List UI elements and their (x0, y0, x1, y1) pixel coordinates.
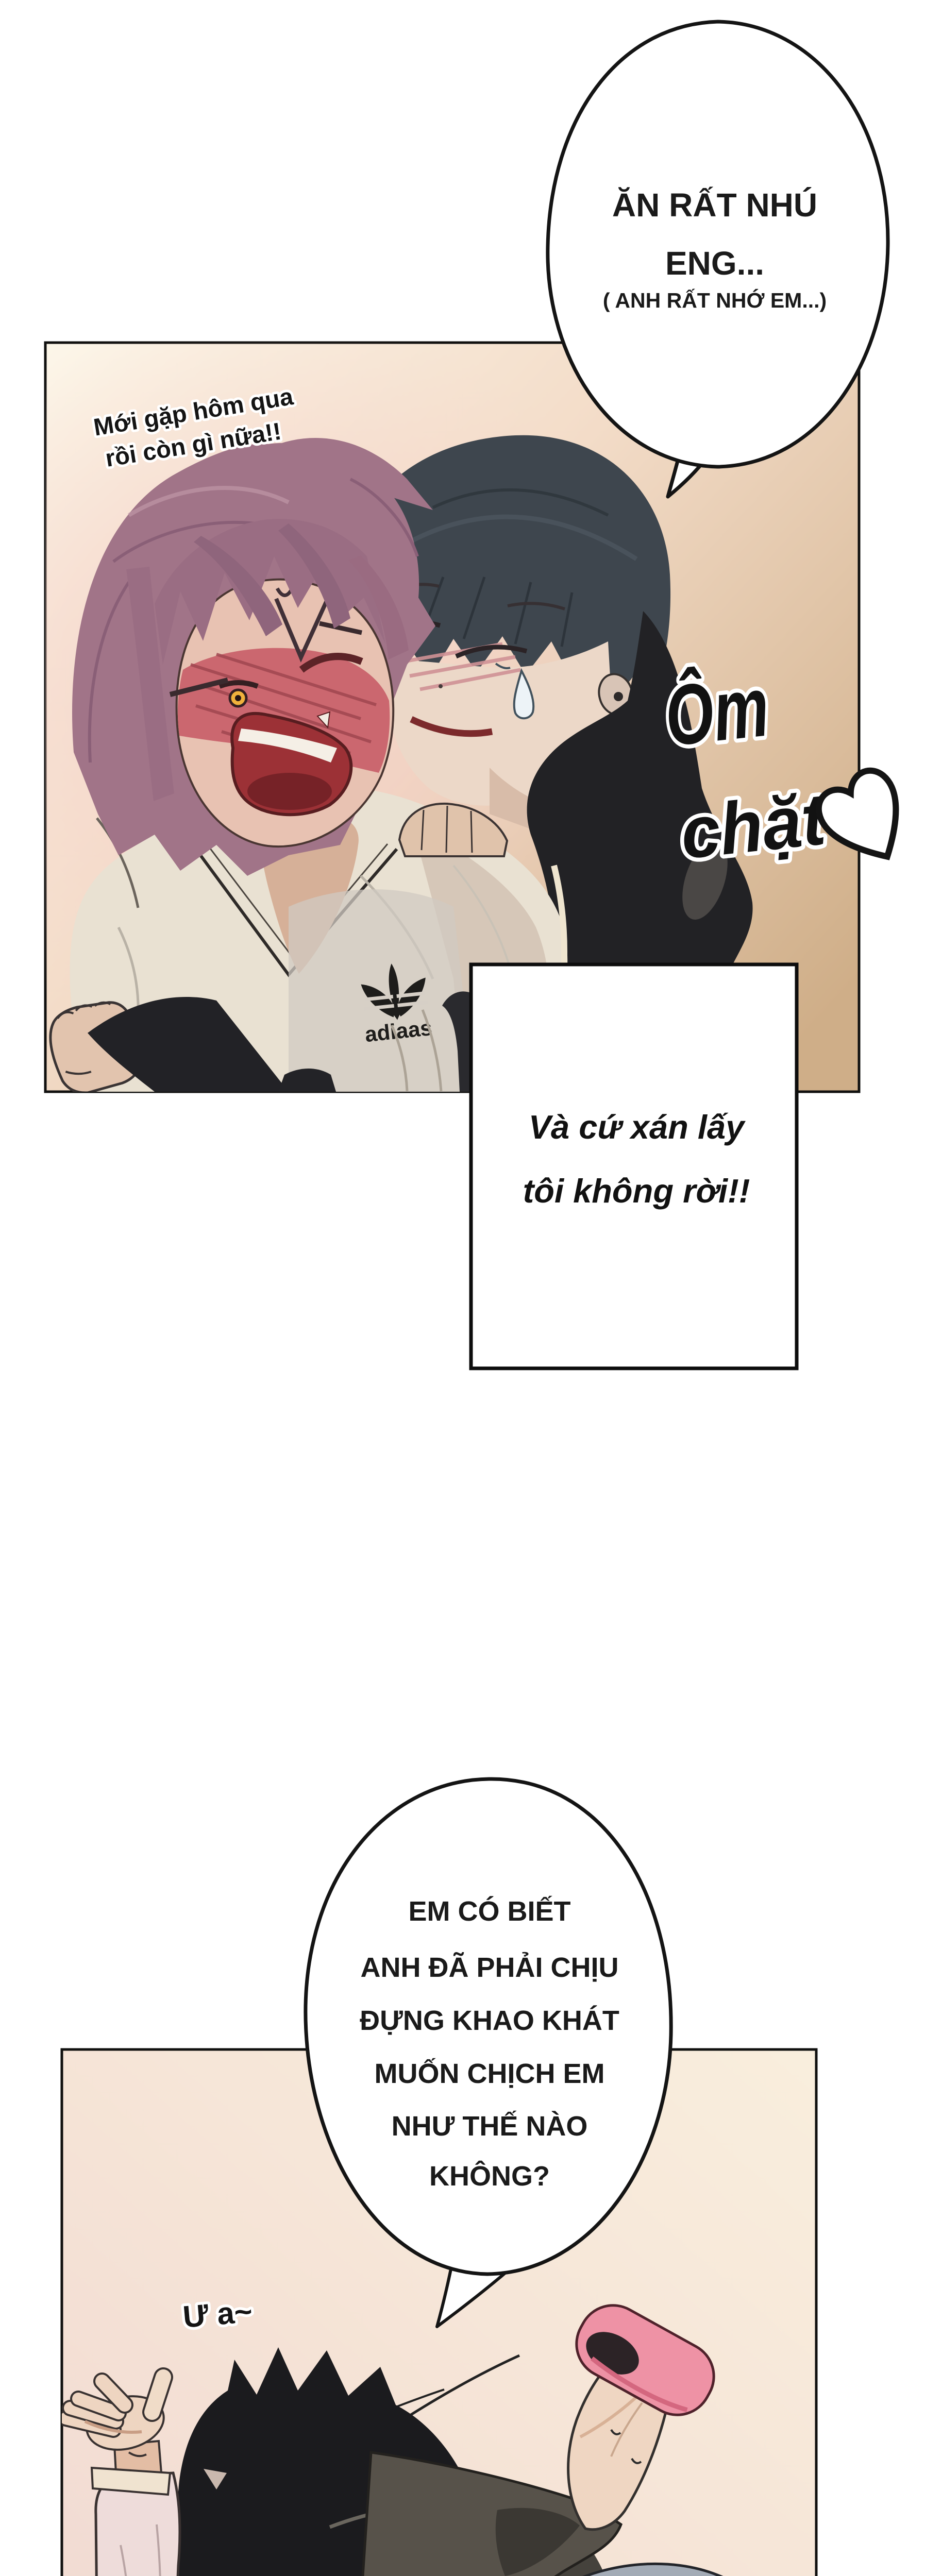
svg-text:tôi không rời!!: tôi không rời!! (523, 1172, 750, 1210)
svg-text:MUỐN CHỊCH EM: MUỐN CHỊCH EM (375, 2058, 605, 2089)
svg-text:chặt: chặt (677, 777, 832, 874)
svg-text:( ANH RẤT NHỚ EM...): ( ANH RẤT NHỚ EM...) (603, 289, 827, 312)
svg-text:ĂN RẤT NHÚ: ĂN RẤT NHÚ (612, 187, 817, 224)
svg-text:EM CÓ BIẾT: EM CÓ BIẾT (408, 1896, 570, 1927)
svg-text:ANH ĐÃ PHẢI CHỊU: ANH ĐÃ PHẢI CHỊU (360, 1952, 618, 1983)
svg-text:KHÔNG?: KHÔNG? (429, 2160, 550, 2192)
svg-text:ĐỰNG KHAO KHÁT: ĐỰNG KHAO KHÁT (360, 2005, 619, 2036)
svg-text:NHƯ THẾ NÀO: NHƯ THẾ NÀO (392, 2111, 588, 2142)
svg-text:ENG...: ENG... (665, 245, 764, 282)
svg-text:Ư a~: Ư a~ (181, 2294, 254, 2334)
svg-text:Ôm: Ôm (661, 658, 773, 764)
svg-text:Và cứ xán lấy: Và cứ xán lấy (529, 1108, 746, 1146)
